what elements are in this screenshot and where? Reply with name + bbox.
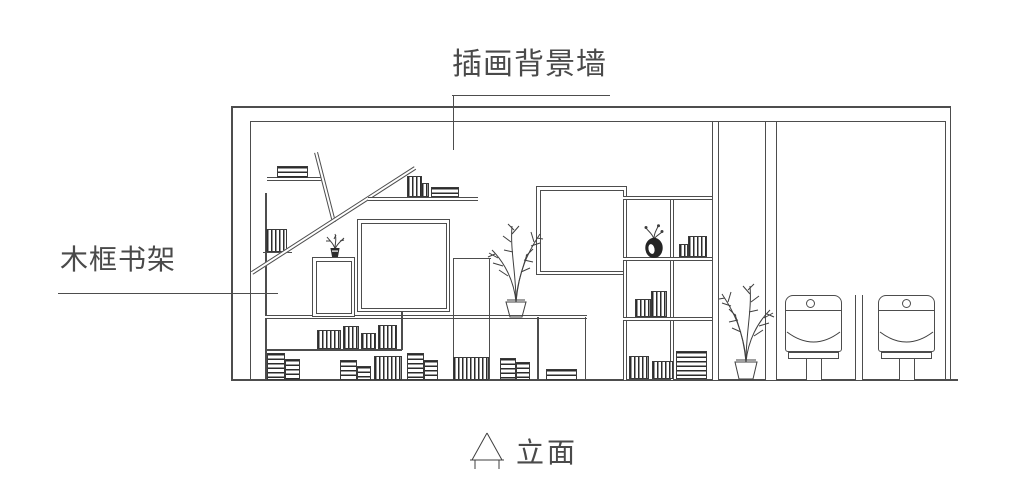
book-row — [407, 176, 422, 197]
bookshelf-leader-line — [58, 293, 278, 294]
book-stack — [500, 358, 516, 380]
elevation-marker-icon — [469, 431, 505, 471]
ceiling-inner-line — [250, 121, 946, 122]
picture-frame-small — [312, 257, 355, 317]
book-stack — [431, 187, 459, 197]
wall-right-inner-line — [945, 121, 946, 380]
diagonal-shelf-short — [314, 152, 336, 223]
chair-divider-panel — [855, 295, 863, 380]
chair-back-seam — [879, 310, 934, 311]
wall-right-outer-line — [950, 106, 952, 380]
book-stack — [357, 366, 371, 380]
picture-frame-medium — [357, 219, 450, 312]
background-wall-leader-underline — [452, 95, 610, 96]
book-row — [635, 299, 651, 317]
book-row — [651, 291, 667, 317]
ceiling-outer-line — [231, 106, 951, 108]
grid-shelf-shelf — [623, 257, 714, 261]
book-row — [317, 330, 341, 349]
background-wall-leader-line — [453, 95, 454, 150]
book-row — [378, 325, 397, 349]
chair-pedestal-post — [899, 358, 915, 380]
elevation-view-label: 立面 — [516, 437, 578, 469]
chair-seat-curve — [880, 331, 933, 352]
book-row — [629, 356, 649, 379]
plant-icon — [714, 272, 778, 380]
book-stack — [546, 369, 577, 380]
vase-icon — [644, 224, 664, 259]
chair-seat-curve — [787, 331, 840, 352]
picture-frame-large — [536, 186, 627, 275]
book-row — [343, 326, 359, 349]
wall-left-inner-line — [250, 121, 251, 380]
plant-icon — [483, 212, 549, 318]
grid-shelf-upright — [670, 197, 674, 380]
book-stack — [676, 351, 707, 379]
grid-shelf-shelf — [623, 317, 714, 321]
chair-handle-hole — [806, 299, 815, 308]
background-wall-label: 插画背景墙 — [452, 48, 607, 83]
grid-shelf-top — [623, 196, 714, 200]
wall-shelf — [368, 197, 478, 201]
elevation-drawing-canvas: 插画背景墙 木框书架 — [0, 0, 1036, 500]
small-plant-icon — [322, 232, 348, 258]
wall-left-outer-line — [231, 106, 233, 380]
grid-shelf-upright — [623, 197, 627, 380]
chair-handle-hole — [902, 299, 911, 308]
table-leg — [585, 317, 587, 380]
book-row — [652, 361, 673, 379]
book-stack — [407, 353, 424, 380]
book-row — [361, 333, 376, 349]
table-leg — [537, 317, 539, 380]
shelf-post — [265, 193, 267, 380]
book-stack — [340, 360, 357, 380]
book-stack — [424, 360, 438, 380]
bookshelf-mid-shelf — [265, 349, 402, 351]
chair-back-seam — [786, 310, 841, 311]
book-stack — [277, 166, 308, 178]
book-row — [679, 244, 688, 257]
chair-pedestal-post — [806, 358, 822, 380]
book-row — [374, 356, 402, 380]
book-row — [421, 183, 429, 197]
bookshelf-label: 木框书架 — [60, 244, 176, 276]
book-stack — [285, 359, 300, 380]
book-stack — [516, 362, 530, 380]
book-stack — [267, 353, 285, 380]
book-row — [688, 236, 707, 257]
book-row — [453, 357, 489, 380]
